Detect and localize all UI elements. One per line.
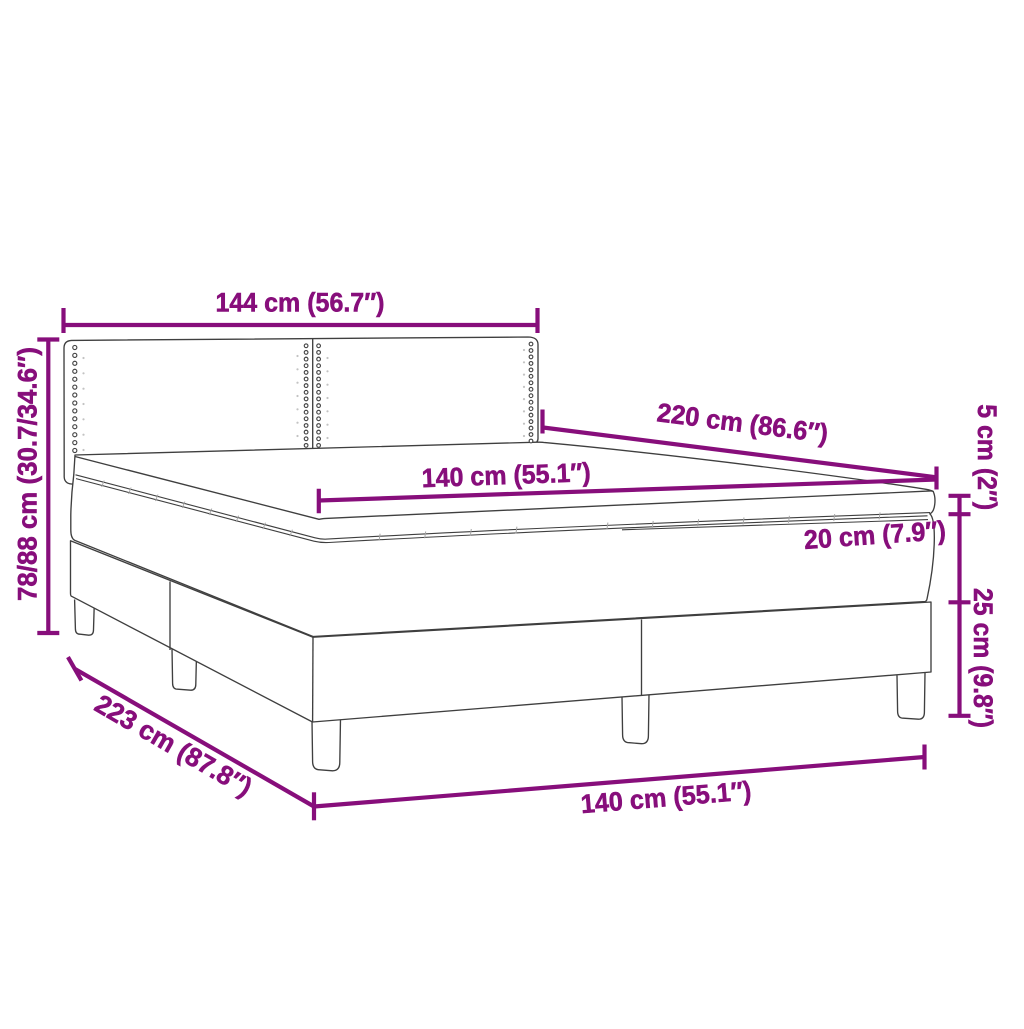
svg-text:5 cm (2″): 5 cm (2″) (972, 404, 1002, 510)
svg-text:78/88 cm (30.7/34.6″): 78/88 cm (30.7/34.6″) (13, 347, 43, 601)
svg-text:140 cm (55.1″): 140 cm (55.1″) (421, 457, 591, 493)
svg-text:25 cm (9.8″): 25 cm (9.8″) (968, 588, 998, 728)
svg-text:144 cm (56.7″): 144 cm (56.7″) (216, 287, 385, 317)
